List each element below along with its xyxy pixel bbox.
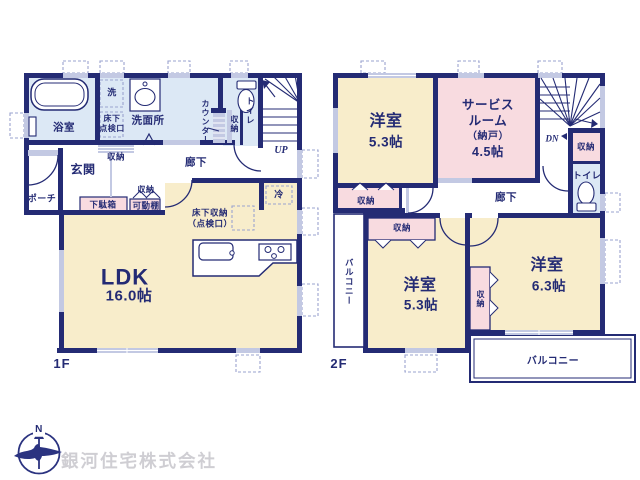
closet3-box (470, 267, 490, 330)
service-room-area (438, 78, 535, 178)
front-door-arc (28, 155, 58, 185)
balcony-side-area (334, 214, 364, 347)
kitchen-sink (199, 243, 233, 260)
bedroom1-area (338, 78, 433, 183)
shoe-cabinet-box (80, 197, 127, 212)
bath-counter (29, 117, 36, 136)
toilet1-bowl (238, 90, 254, 113)
balcony-bottom-area (470, 335, 635, 382)
toilet-closet-strip (227, 110, 232, 143)
toilet2-bowl (578, 182, 594, 204)
floorplan-page: 浴室 洗 洗面所 床下 点検口 カウンター 収納 トイレ UP 収納 玄関 廊下… (0, 0, 640, 480)
kitchen-faucet (230, 251, 234, 255)
stairs-1f (262, 75, 302, 141)
closet2-box (368, 218, 435, 240)
hall-storage-box (572, 132, 600, 164)
stairs-dn-arrow (591, 119, 598, 128)
bird-logo-icon (14, 444, 62, 461)
toilet2-tank (577, 203, 596, 211)
front-door-leaf (28, 150, 58, 156)
closet1-box (338, 188, 400, 210)
bedroom1-door-arc (408, 188, 433, 213)
hall-storage-strip (98, 145, 134, 153)
toilet1-door-arc (234, 144, 261, 171)
toilet2-door-arc (543, 166, 568, 191)
toilet1-tank (237, 81, 256, 89)
floorplan-graphics (0, 0, 640, 480)
compass (14, 425, 62, 474)
